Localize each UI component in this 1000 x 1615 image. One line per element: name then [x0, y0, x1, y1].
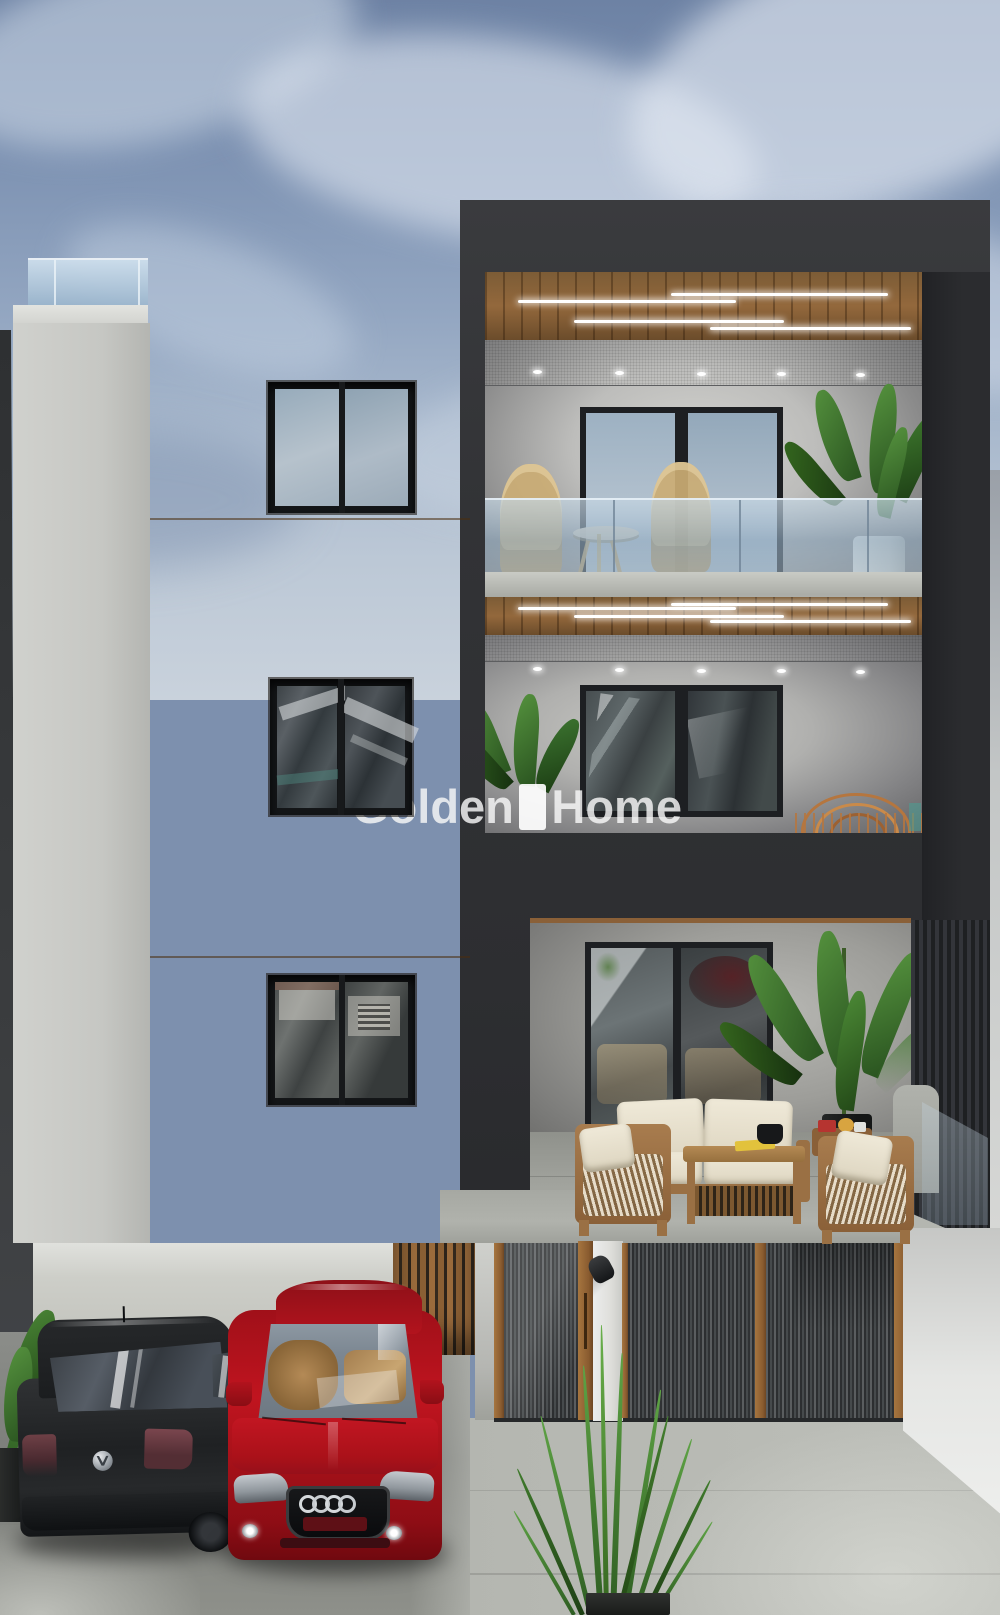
car-antenna: [123, 1306, 125, 1322]
downlight: [777, 669, 786, 673]
downlight: [856, 670, 865, 674]
fence-post: [755, 1243, 766, 1418]
wood-column-window-1: [268, 382, 415, 513]
right-neighbor-wall-strip: [990, 470, 1000, 1230]
wood-column-window-2: [270, 679, 412, 815]
door-glass: [688, 691, 777, 811]
front-grille: [286, 1486, 390, 1540]
armchair-right: [818, 1132, 918, 1244]
side-mirror-right: [420, 1380, 444, 1404]
watermark-logo-block: [519, 784, 547, 830]
fog-light-left: [242, 1524, 258, 1538]
led-strip: [710, 620, 911, 623]
upper-balcony-slab: [485, 572, 922, 597]
plate-recess: [303, 1517, 367, 1531]
taillight-left: [22, 1434, 57, 1477]
wood-panel-seam: [150, 956, 470, 958]
downlight: [697, 669, 706, 673]
downlight: [615, 668, 624, 672]
red-car: [228, 1280, 442, 1564]
downlight: [615, 371, 624, 375]
bumper-intake: [280, 1538, 390, 1548]
wood-column-window-3: [268, 975, 415, 1105]
stair-glass-panel: [909, 803, 921, 831]
side-mirror-left: [226, 1382, 252, 1406]
black-mug: [757, 1124, 783, 1144]
architectural-rendering: Golden Home: [0, 0, 1000, 1615]
planter-trough: [586, 1593, 670, 1615]
grass-planter: [552, 1340, 682, 1615]
window-glass: [275, 982, 339, 1098]
window-glass: [345, 686, 405, 808]
upper-floor-opening: [485, 272, 922, 597]
led-strip: [518, 300, 736, 303]
middle-ceiling-slab: [485, 635, 922, 662]
wiper: [262, 1417, 326, 1426]
window-glass: [344, 389, 408, 506]
passage-wall: [475, 1243, 494, 1420]
downlight: [856, 373, 865, 377]
led-strip: [671, 603, 888, 606]
upper-wood-soffit: [485, 272, 922, 340]
spiral-staircase: [795, 785, 922, 833]
window-glass: [275, 389, 339, 506]
headlight-left: [233, 1472, 289, 1504]
left-building-wall: [13, 323, 150, 1243]
black-car: [15, 1315, 253, 1553]
wiper: [342, 1418, 406, 1424]
wood-panel-seam: [150, 518, 470, 520]
led-strip: [671, 293, 888, 296]
audi-rings-icon: [299, 1495, 377, 1515]
downlight: [533, 667, 542, 671]
led-strip: [574, 320, 784, 323]
led-strip: [710, 327, 911, 330]
led-strip: [518, 607, 736, 610]
led-strip: [574, 615, 784, 618]
downlight: [697, 372, 706, 376]
middle-wood-soffit: [485, 597, 922, 635]
left-building-parapet: [13, 305, 148, 324]
fence-post: [494, 1243, 504, 1418]
armchair-left: [575, 1118, 671, 1236]
dark-building-side-return: [922, 272, 990, 922]
taillight-right: [144, 1428, 193, 1469]
left-roof-glass-railing: [28, 258, 148, 310]
upper-glass-balustrade: [485, 498, 922, 574]
coffee-table: [683, 1146, 805, 1230]
watermark-text-right: Home: [551, 779, 682, 834]
downlight: [533, 370, 542, 374]
upper-ceiling-slab: [485, 340, 922, 386]
downlight: [777, 372, 786, 376]
hood: [232, 1418, 438, 1474]
window-glass: [277, 686, 337, 808]
windshield: [258, 1324, 418, 1422]
window-glass: [344, 982, 408, 1098]
